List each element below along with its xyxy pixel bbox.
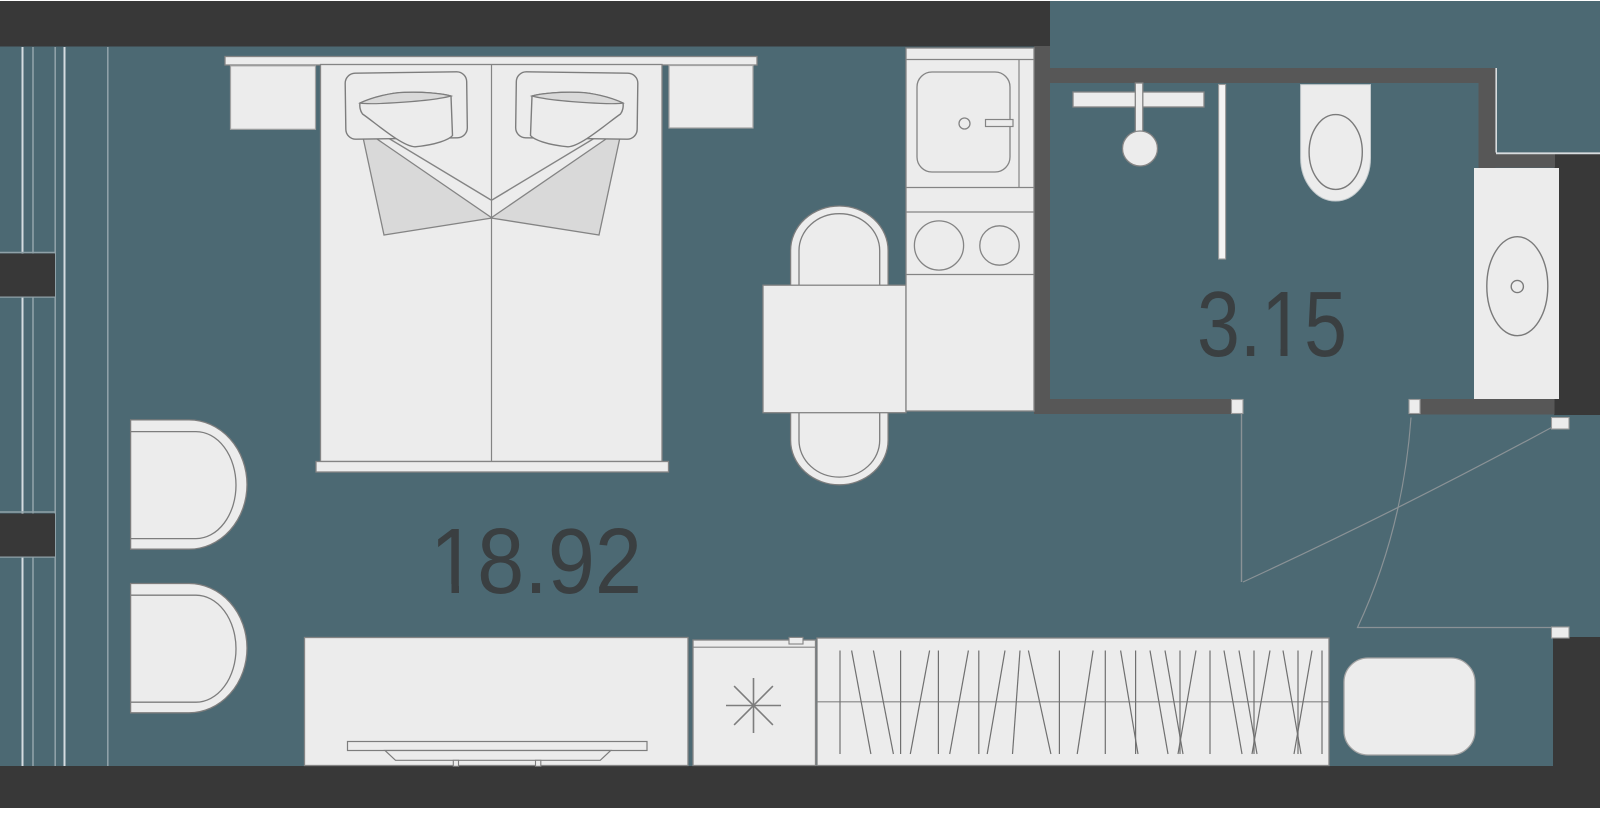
svg-text:3.15: 3.15 — [1197, 272, 1347, 376]
svg-text:18.92: 18.92 — [430, 509, 642, 613]
